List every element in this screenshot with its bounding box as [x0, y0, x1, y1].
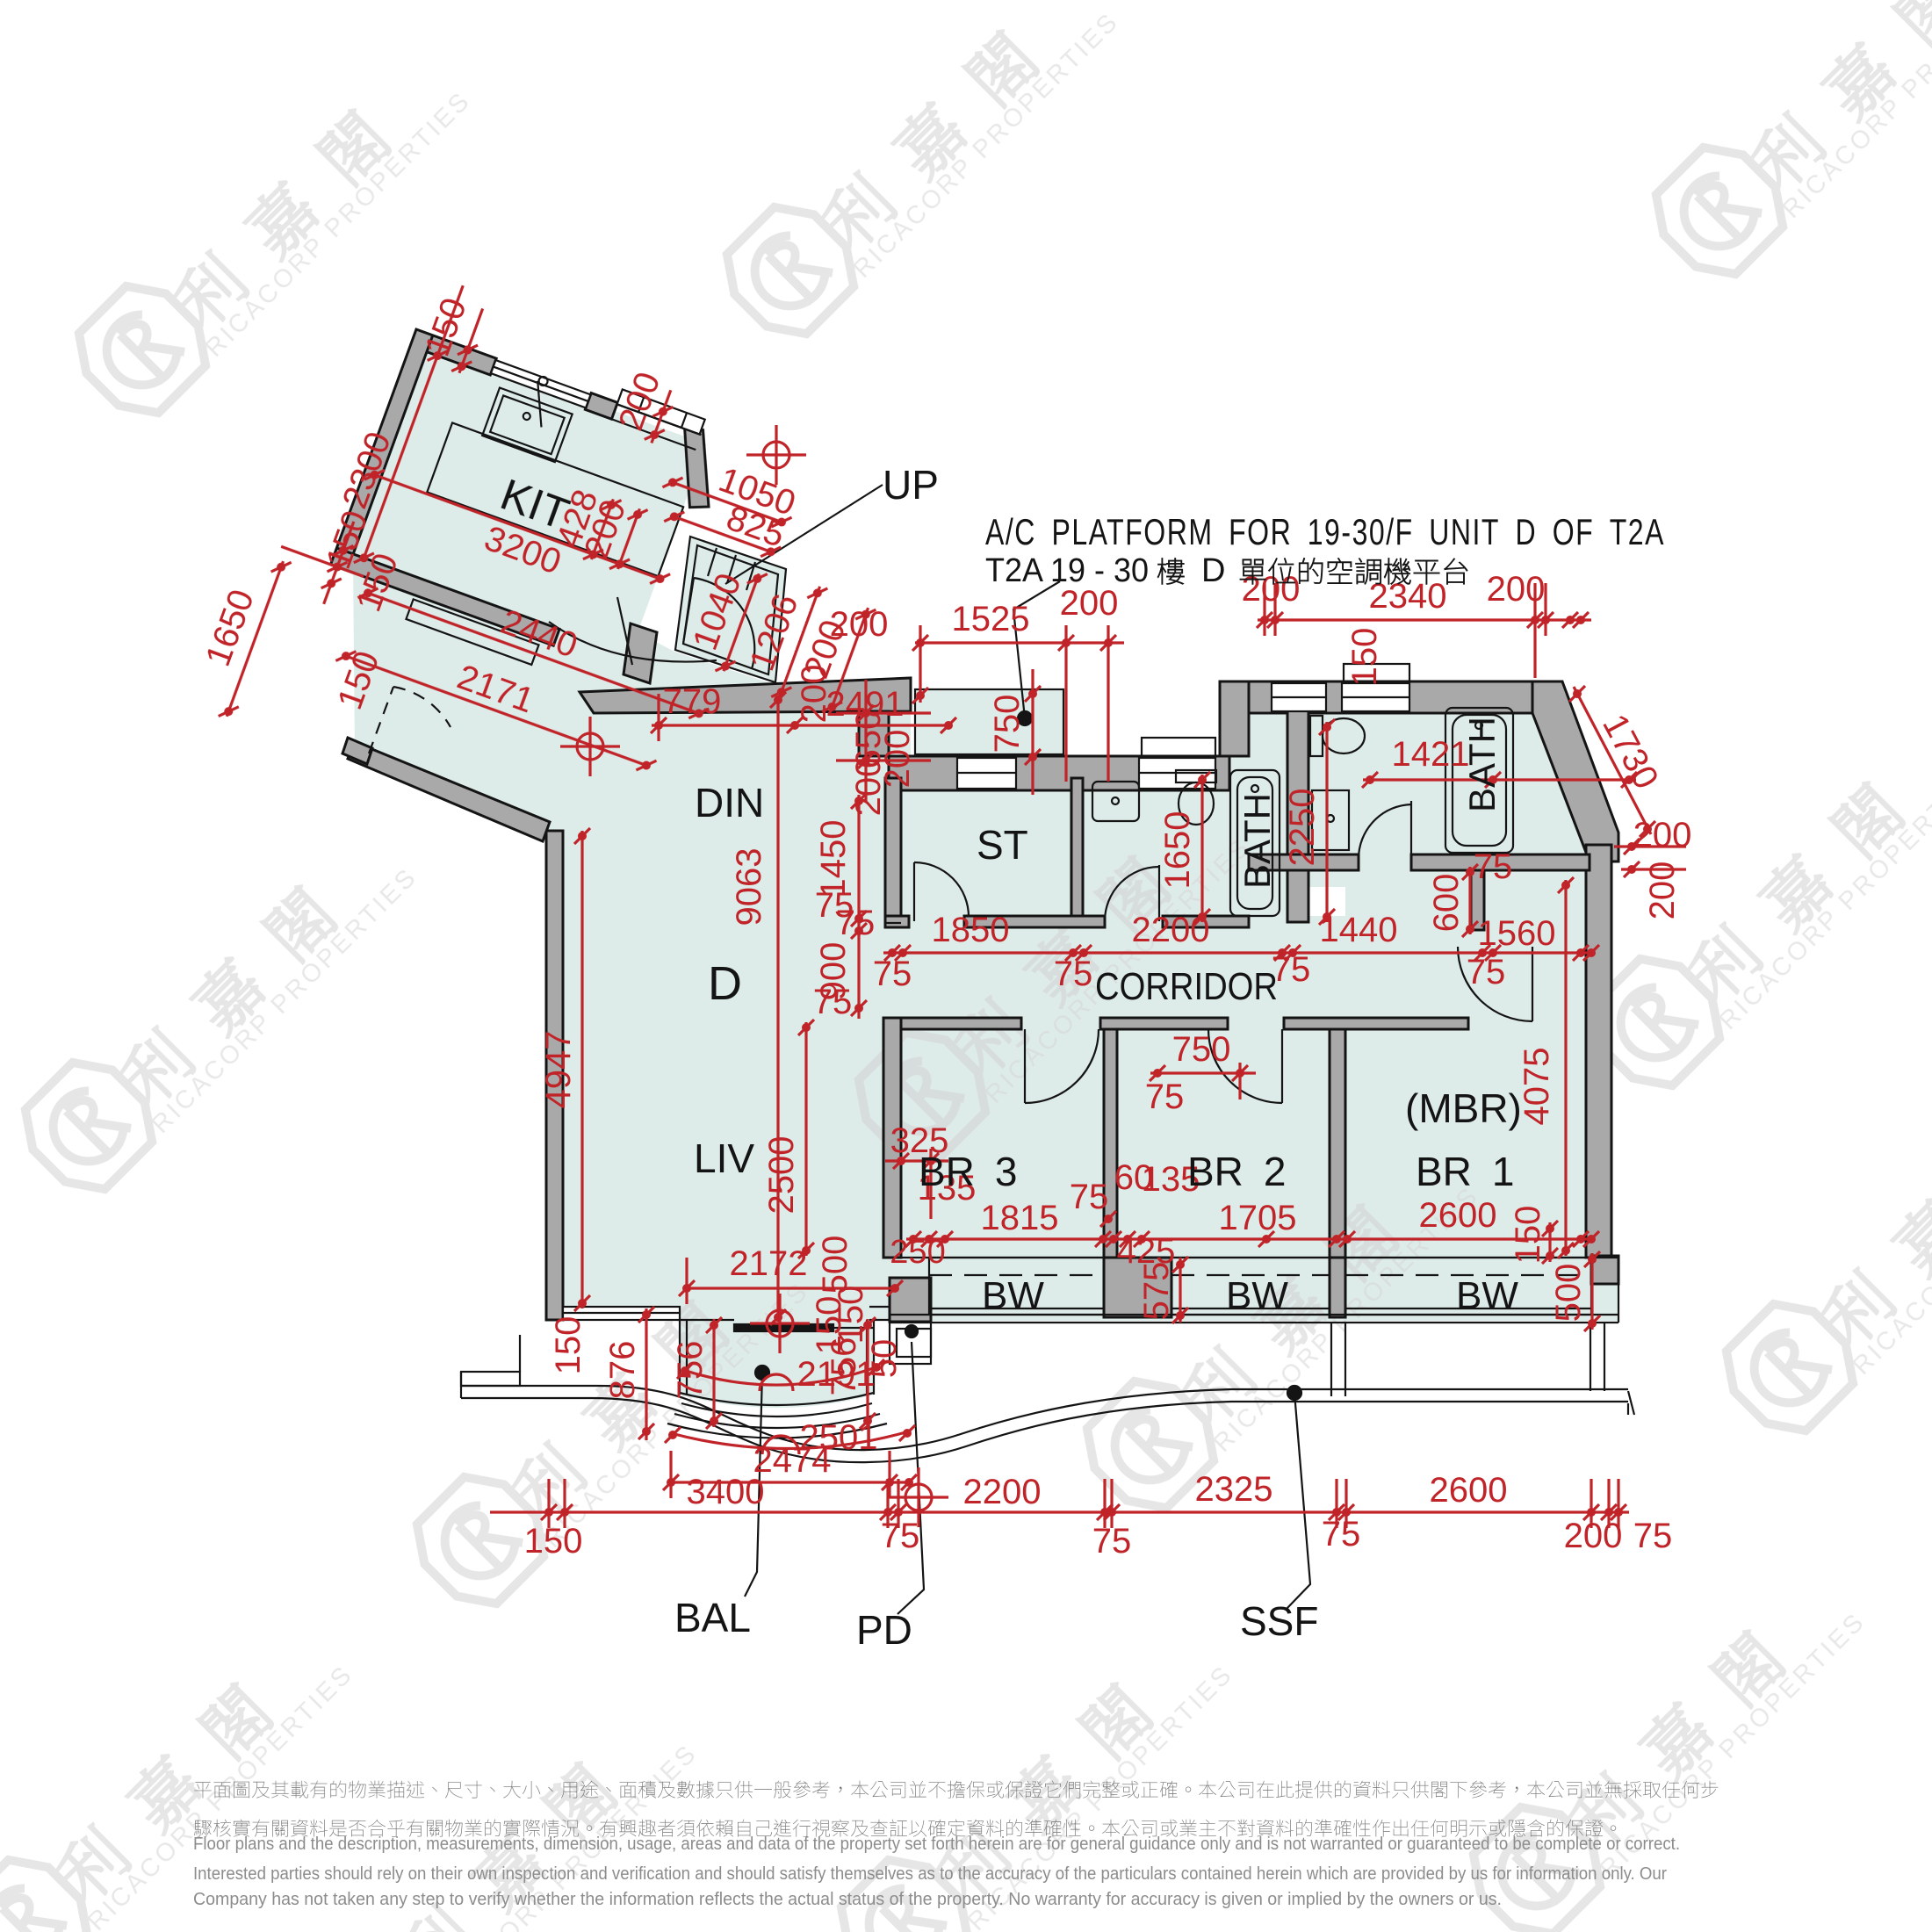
svg-text:150: 150 — [1345, 628, 1384, 687]
svg-text:75: 75 — [873, 955, 912, 993]
svg-text:BR 1: BR 1 — [1416, 1149, 1514, 1194]
svg-text:600: 600 — [1427, 874, 1466, 933]
svg-text:CORRIDOR: CORRIDOR — [1095, 965, 1278, 1008]
svg-text:75: 75 — [1092, 1522, 1132, 1561]
svg-text:876: 876 — [603, 1341, 642, 1400]
svg-text:2250: 2250 — [1283, 789, 1322, 867]
svg-text:4947: 4947 — [539, 1031, 578, 1109]
svg-text:75: 75 — [813, 983, 853, 1021]
svg-text:DIN: DIN — [695, 780, 764, 825]
svg-text:D: D — [1201, 552, 1225, 589]
svg-text:2491: 2491 — [826, 685, 905, 724]
svg-text:1525: 1525 — [952, 600, 1030, 638]
svg-text:2200: 2200 — [963, 1473, 1042, 1511]
svg-text:BW: BW — [1456, 1274, 1518, 1317]
svg-text:75: 75 — [1070, 1178, 1109, 1216]
svg-text:ST: ST — [977, 822, 1028, 868]
svg-text:2600: 2600 — [1430, 1471, 1508, 1510]
svg-text:BAL: BAL — [674, 1595, 751, 1640]
svg-text:1815: 1815 — [981, 1199, 1059, 1237]
svg-text:75: 75 — [1633, 1517, 1673, 1555]
svg-text:779: 779 — [663, 682, 722, 721]
svg-text:A/C PLATFORM FOR 19-30/F UNIT: A/C PLATFORM FOR 19-30/F UNIT D OF T2A — [985, 511, 1665, 552]
svg-text:Floor plans and the descriptio: Floor plans and the description, measure… — [193, 1835, 1680, 1854]
svg-text:SSF: SSF — [1240, 1598, 1318, 1644]
svg-text:150: 150 — [1509, 1206, 1547, 1265]
svg-text:200: 200 — [830, 605, 889, 644]
svg-text:BR 3: BR 3 — [919, 1149, 1017, 1194]
svg-text:2172: 2172 — [730, 1244, 808, 1283]
svg-text:BATH: BATH — [1461, 717, 1503, 812]
svg-text:1850: 1850 — [932, 911, 1010, 949]
svg-text:UP: UP — [883, 462, 939, 508]
svg-text:BW: BW — [1226, 1274, 1288, 1317]
svg-text:500: 500 — [816, 1236, 854, 1294]
svg-text:756: 756 — [671, 1341, 710, 1400]
svg-text:2325: 2325 — [1195, 1470, 1273, 1509]
svg-text:T2A 19 - 30: T2A 19 - 30 — [985, 552, 1149, 589]
svg-text:150: 150 — [524, 1522, 583, 1561]
svg-text:150: 150 — [549, 1316, 588, 1375]
svg-text:250: 250 — [890, 1234, 945, 1271]
svg-text:575: 575 — [1137, 1262, 1176, 1321]
svg-text:9063: 9063 — [730, 848, 768, 926]
svg-text:75: 75 — [1054, 955, 1093, 993]
svg-text:150: 150 — [832, 1286, 870, 1344]
svg-text:4075: 4075 — [1517, 1048, 1556, 1126]
svg-text:75: 75 — [1322, 1515, 1361, 1554]
svg-text:BW: BW — [982, 1274, 1044, 1317]
svg-text:2500: 2500 — [762, 1136, 801, 1215]
svg-text:1560: 1560 — [1478, 914, 1556, 953]
svg-text:Interested parties should rely: Interested parties should rely on their … — [193, 1864, 1667, 1884]
svg-text:2600: 2600 — [1419, 1196, 1497, 1235]
svg-text:1421: 1421 — [1392, 735, 1470, 774]
svg-text:(MBR): (MBR) — [1405, 1085, 1522, 1131]
svg-text:200: 200 — [1060, 584, 1119, 623]
svg-text:PD: PD — [856, 1607, 912, 1653]
svg-text:750: 750 — [1172, 1030, 1231, 1069]
svg-text:BR 2: BR 2 — [1187, 1149, 1286, 1194]
svg-text:LIV: LIV — [694, 1135, 754, 1181]
svg-text:75: 75 — [836, 904, 876, 942]
svg-text:D: D — [708, 957, 742, 1010]
svg-text:200: 200 — [849, 758, 888, 817]
svg-text:75: 75 — [1474, 847, 1513, 886]
svg-text:Company has not taken any step: Company has not taken any step to verify… — [193, 1890, 1502, 1909]
svg-text:200: 200 — [1564, 1517, 1623, 1555]
svg-text:50: 50 — [865, 1339, 904, 1379]
svg-text:75: 75 — [881, 1517, 920, 1555]
svg-text:75: 75 — [1467, 953, 1506, 991]
svg-text:500: 500 — [1549, 1264, 1588, 1323]
svg-text:75: 75 — [1145, 1078, 1185, 1116]
svg-text:BATH: BATH — [1236, 793, 1278, 889]
svg-text:750: 750 — [988, 695, 1027, 753]
svg-text:1705: 1705 — [1219, 1199, 1297, 1237]
svg-text:1650: 1650 — [1158, 811, 1197, 890]
